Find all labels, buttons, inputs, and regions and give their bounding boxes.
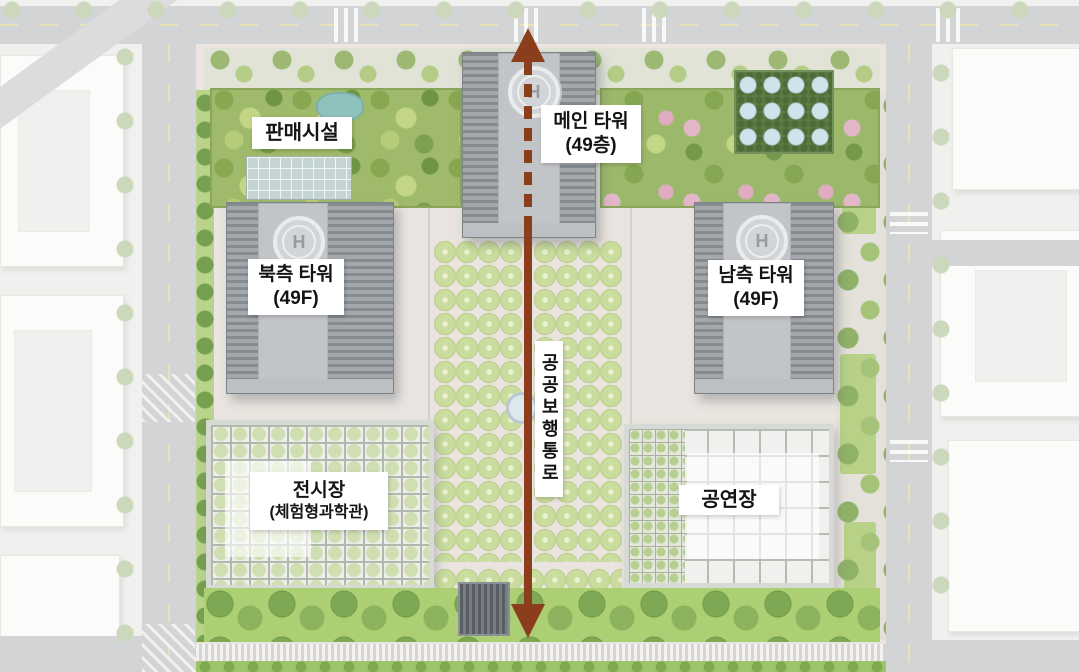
label-text-line2: (49F) (733, 288, 778, 312)
label-retail-facility: 판매시설 (252, 117, 352, 149)
crosswalk (142, 624, 196, 672)
label-text-line1: 남측 타워 (718, 264, 793, 288)
street-trees-column (114, 44, 138, 672)
axis-arrowhead-down (511, 604, 545, 638)
label-text-line1: 전시장 (293, 479, 345, 503)
road-bottom-right (932, 640, 1079, 672)
city-block-roof (975, 270, 1067, 382)
label-exhibition-hall: 전시장 (체험형과학관) (250, 472, 388, 530)
label-performance-hall: 공연장 (679, 485, 779, 515)
road-lane-marking (908, 44, 910, 672)
road-left (142, 44, 196, 672)
crosswalk (890, 212, 928, 234)
label-text-line2: (체험형과학관) (270, 503, 369, 523)
label-south-tower: 남측 타워 (49F) (708, 260, 804, 316)
city-block (0, 555, 120, 647)
city-block-roof (18, 90, 90, 232)
pergola-skylights (734, 70, 834, 154)
label-text-line1: 메인 타워 (553, 110, 628, 134)
site-plan-map: H H H 판매시설 메인 타워 (49층) (0, 0, 1079, 672)
label-text: 공공보행통로 (538, 353, 561, 485)
hall-terrace-grid (629, 429, 685, 583)
city-block (948, 440, 1079, 632)
city-block-roof (14, 330, 92, 492)
road-side-east (932, 240, 1079, 266)
bottom-hedge (196, 661, 886, 672)
axis-dashed-line (524, 62, 532, 222)
street-trees-row (0, 0, 1079, 20)
label-text: 공연장 (701, 488, 756, 513)
label-main-tower: 메인 타워 (49층) (541, 105, 641, 163)
label-public-pedestrian-axis: 공공보행통로 (535, 341, 563, 497)
tower-podium (227, 379, 393, 393)
axis-solid-line (524, 222, 532, 606)
road-right (886, 44, 932, 672)
label-text-line1: 북측 타워 (258, 263, 333, 287)
tower-podium (695, 379, 833, 393)
label-north-tower: 북측 타워 (49F) (248, 259, 344, 315)
pavilion-structure (458, 582, 510, 636)
helipad-ring (517, 75, 551, 109)
street-trees-column (930, 60, 954, 640)
helipad-ring (282, 225, 316, 259)
fountain (506, 392, 538, 424)
label-text-line2: (49F) (273, 287, 318, 311)
bottom-paving-band (196, 644, 886, 661)
greenhouse (246, 156, 352, 200)
axis-arrowhead-up (511, 28, 545, 62)
label-text-line2: (49층) (565, 134, 616, 158)
city-block (952, 48, 1079, 190)
crosswalk (890, 440, 928, 462)
road-lane-marking (168, 44, 170, 672)
label-text: 판매시설 (265, 121, 339, 146)
helipad-ring (745, 224, 779, 258)
crosswalk (142, 374, 196, 422)
